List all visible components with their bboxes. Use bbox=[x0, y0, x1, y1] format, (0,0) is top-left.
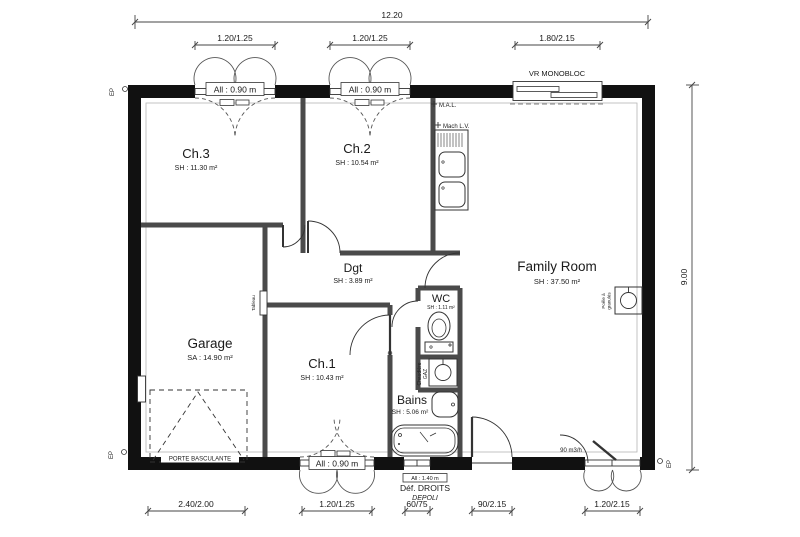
room-area-wc: SH : 1.11 m² bbox=[427, 305, 455, 311]
room-name-garage: Garage bbox=[187, 336, 232, 351]
room-name-dgt: Dgt bbox=[344, 261, 363, 275]
ep-label-bottom-right: EP bbox=[667, 460, 673, 468]
dimension-bottom bbox=[145, 506, 643, 516]
room-name-wc: WC bbox=[432, 293, 450, 305]
boiler bbox=[429, 359, 457, 386]
floor-plan-canvas: 12.20 1.20/1.25 1.20/1.25 1.80/2.15 9.00… bbox=[0, 0, 800, 537]
dim-overall-width: 12.20 bbox=[381, 10, 403, 20]
electrical-panel bbox=[260, 291, 267, 315]
stove-label-1: Poêle à bbox=[601, 293, 606, 309]
dim-bottom-4: 90/2.15 bbox=[478, 499, 507, 509]
vr-monobloc-label: VR MONOBLOC bbox=[529, 69, 586, 78]
dim-bottom-5: 1.20/2.15 bbox=[594, 499, 630, 509]
electrical-panel-label: Tableau bbox=[251, 295, 256, 311]
floor-plan-drawing: 12.20 1.20/1.25 1.20/1.25 1.80/2.15 9.00… bbox=[0, 0, 800, 537]
garage-side-niche bbox=[138, 376, 146, 402]
dim-overall-height: 9.00 bbox=[679, 268, 689, 285]
sill-label-boxes bbox=[206, 83, 447, 483]
stove-label-2: granulés bbox=[607, 292, 612, 310]
dishwasher-label: Mach L.V. bbox=[443, 124, 470, 130]
dim-top-1: 1.20/1.25 bbox=[217, 33, 253, 43]
washbasin bbox=[432, 392, 458, 417]
room-name-family: Family Room bbox=[517, 259, 597, 274]
room-area-ch3: SH : 11.30 m² bbox=[175, 165, 218, 172]
garage-door bbox=[150, 390, 247, 462]
bathtub bbox=[391, 425, 458, 456]
glazing-note-1: Déf. DROITS bbox=[400, 483, 450, 493]
sill-label-bains: All : 1.40 m bbox=[411, 476, 439, 482]
room-labels: Ch.3 SH : 11.30 m² Ch.2 SH : 10.54 m² Fa… bbox=[175, 141, 597, 416]
airflow-label: 90 m3/h bbox=[560, 448, 582, 454]
room-name-bains: Bains bbox=[397, 393, 427, 407]
dim-bottom-2: 1.20/1.25 bbox=[319, 499, 355, 509]
room-name-ch1: Ch.1 bbox=[308, 356, 335, 371]
room-name-ch3: Ch.3 bbox=[182, 146, 209, 161]
sill-label-ch3: All : 0.90 m bbox=[214, 85, 257, 95]
washing-machine-label: M.A.L. bbox=[439, 103, 457, 109]
room-area-family: SH : 37.50 m² bbox=[534, 277, 581, 286]
boiler-label-2: GAZ bbox=[423, 369, 429, 379]
room-area-dgt: SH : 3.89 m² bbox=[333, 278, 373, 285]
kitchen-unit bbox=[435, 130, 468, 210]
sill-label-ch2: All : 0.90 m bbox=[349, 85, 392, 95]
dim-top-3: 1.80/2.15 bbox=[539, 33, 575, 43]
garage-door-label: PORTE BASCULANTE bbox=[169, 457, 231, 463]
room-area-ch1: SH : 10.43 m² bbox=[300, 375, 344, 382]
ep-label-top-left: EP bbox=[110, 88, 116, 96]
room-name-ch2: Ch.2 bbox=[343, 141, 370, 156]
room-area-ch2: SH : 10.54 m² bbox=[335, 160, 379, 167]
toilet bbox=[425, 312, 453, 352]
glazing-note-2: DEPOLI bbox=[412, 495, 438, 502]
room-area-garage: SA : 14.90 m² bbox=[187, 353, 233, 362]
sill-label-ch1: All : 0.90 m bbox=[316, 459, 359, 469]
ep-label-bottom-left: EP bbox=[109, 451, 115, 459]
room-area-bains: SH : 5.06 m² bbox=[392, 409, 429, 416]
dim-top-2: 1.20/1.25 bbox=[352, 33, 388, 43]
dim-bottom-1: 2.40/2.00 bbox=[178, 499, 214, 509]
pellet-stove bbox=[615, 287, 642, 314]
sliding-window-vr bbox=[510, 82, 606, 105]
